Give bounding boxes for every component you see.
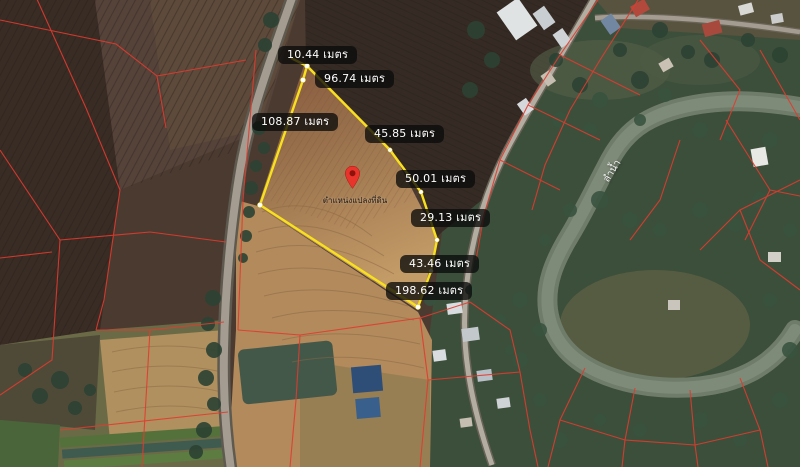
measurement-label-10-44: 10.44 เมตร [278, 46, 357, 64]
measurement-label-96-74: 96.74 เมตร [315, 70, 394, 88]
measurement-label-45-85: 45.85 เมตร [365, 125, 444, 143]
pin-label: ตำแหน่งแปลงที่ดิน [320, 194, 390, 207]
location-pin-icon[interactable] [344, 162, 361, 193]
satellite-imagery [0, 0, 800, 467]
measurement-label-108-87: 108.87 เมตร [252, 113, 338, 131]
map-canvas[interactable]: 10.44 เมตร 96.74 เมตร 108.87 เมตร 45.85 … [0, 0, 800, 467]
measurement-label-198-62: 198.62 เมตร [386, 282, 472, 300]
measurement-label-50-01: 50.01 เมตร [396, 170, 475, 188]
measurement-label-29-13: 29.13 เมตร [411, 209, 490, 227]
measurement-label-43-46: 43.46 เมตร [400, 255, 479, 273]
